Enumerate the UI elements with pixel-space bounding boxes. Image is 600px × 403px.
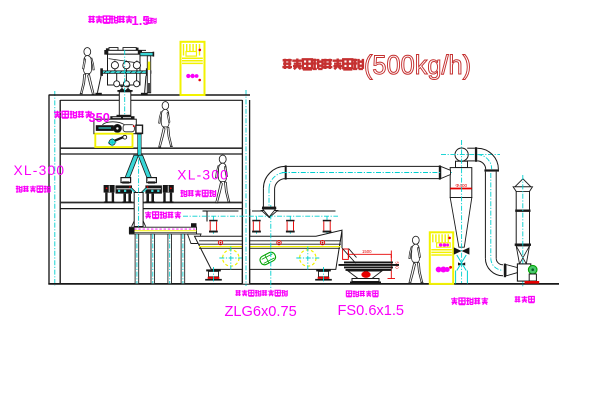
svg-text:(500kg/h): (500kg/h) xyxy=(364,50,471,80)
svg-text:ZLG6x0.75: ZLG6x0.75 xyxy=(225,304,297,320)
svg-text:1500: 1500 xyxy=(362,249,372,254)
svg-text:XL-300: XL-300 xyxy=(14,163,66,178)
svg-text:XL-300: XL-300 xyxy=(177,168,229,183)
svg-text:350: 350 xyxy=(89,110,110,125)
svg-text:FS0.6x1.5: FS0.6x1.5 xyxy=(338,303,405,319)
